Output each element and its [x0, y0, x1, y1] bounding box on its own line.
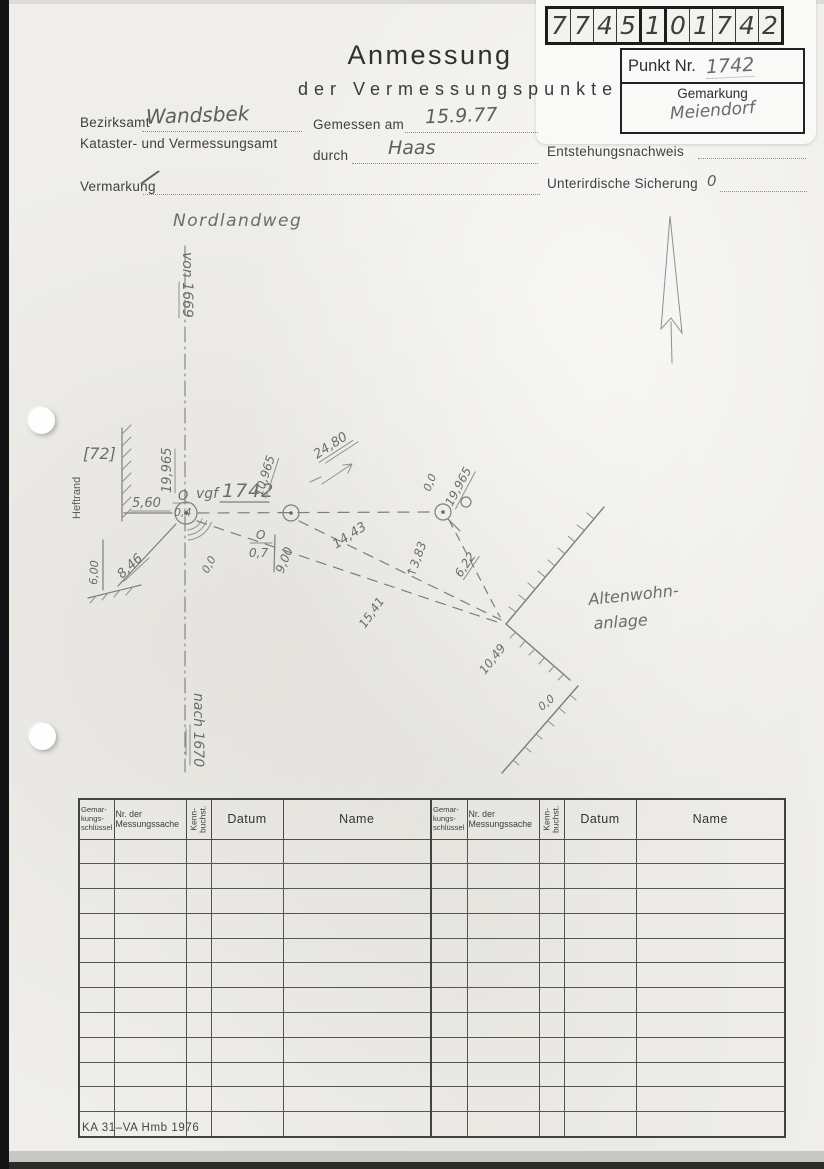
table-cell	[636, 913, 785, 938]
measure-900: 9,00	[273, 545, 296, 575]
table-cell	[283, 963, 431, 988]
table-row	[431, 913, 785, 938]
table-cell	[539, 1087, 564, 1112]
table-cell	[636, 1087, 785, 1112]
measure-19965-left: 19,965	[160, 448, 175, 494]
table-cell	[211, 963, 283, 988]
col-gemarkungsschluessel: Gemar- kungs- schlüssel	[431, 799, 467, 839]
table-cell	[431, 963, 467, 988]
table-cell	[211, 913, 283, 938]
table-cell	[211, 839, 283, 864]
table-cell	[564, 963, 636, 988]
table-cell	[186, 1013, 211, 1038]
table-cell	[431, 889, 467, 914]
col-gemarkungsschluessel: Gemar- kungs- schlüssel	[79, 799, 114, 839]
point2-symbol: O	[256, 528, 265, 542]
north-arrow-icon	[661, 216, 682, 363]
measure-text: 19,965	[442, 465, 474, 509]
measure-00-p3: 0,0	[421, 472, 440, 493]
table-row	[79, 1062, 431, 1087]
measure-1443: 14,43	[330, 520, 369, 553]
table-cell	[467, 963, 539, 988]
table-cell	[431, 1087, 467, 1112]
table-row	[431, 1037, 785, 1062]
table-cell	[283, 988, 431, 1013]
table-cell	[283, 889, 431, 914]
table-cell	[79, 1013, 114, 1038]
table-cell	[431, 864, 467, 889]
ray-1443	[299, 521, 501, 620]
table-row	[79, 889, 431, 914]
table-cell	[114, 1062, 186, 1087]
measure-622: 6,22	[452, 549, 479, 580]
table-row	[431, 1062, 785, 1087]
table-cell	[211, 889, 283, 914]
table-cell	[186, 889, 211, 914]
table-cell	[467, 913, 539, 938]
table-cell	[431, 1013, 467, 1038]
area-label-line2: anlage	[593, 610, 649, 633]
table-cell	[114, 864, 186, 889]
table-cell	[79, 1037, 114, 1062]
measure-1049: 10,49	[476, 641, 508, 677]
table-cell	[283, 913, 431, 938]
table-cell	[636, 1037, 785, 1062]
measure-text: 0,0	[421, 472, 440, 493]
table-cell	[564, 1037, 636, 1062]
wall-hatch	[122, 425, 131, 518]
table-header-row: Gemar- kungs- schlüssel Nr. der Messungs…	[431, 799, 785, 839]
table-cell	[79, 839, 114, 864]
table-cell	[636, 1062, 785, 1087]
table-cell	[79, 988, 114, 1013]
measure-text: 10,49	[476, 641, 508, 677]
col-datum: Datum	[564, 799, 636, 839]
table-cell	[186, 938, 211, 963]
table-cell	[467, 1037, 539, 1062]
table-cell	[539, 889, 564, 914]
table-cell	[186, 1087, 211, 1112]
table-cell	[186, 1062, 211, 1087]
table-cell	[539, 1062, 564, 1087]
heftrand-text: Heftrand	[71, 477, 83, 519]
table-cell	[114, 839, 186, 864]
table-cell	[211, 1112, 283, 1137]
table-cell	[636, 889, 785, 914]
table-cell	[564, 1062, 636, 1087]
baseline-dashed	[198, 512, 433, 513]
table-row	[79, 913, 431, 938]
table-cell	[283, 1013, 431, 1038]
table-row	[431, 938, 785, 963]
table-cell	[539, 1013, 564, 1038]
heftrand-label: Heftrand	[71, 477, 83, 519]
measure-10965: 10,965	[252, 454, 279, 499]
table-row	[79, 1087, 431, 1112]
table-cell	[283, 1062, 431, 1087]
table-cell	[564, 1013, 636, 1038]
measure-text: 0,0	[536, 692, 558, 713]
col-datum: Datum	[211, 799, 283, 839]
table-cell	[467, 1087, 539, 1112]
table-cell	[467, 839, 539, 864]
table-cell	[431, 938, 467, 963]
table-cell	[431, 913, 467, 938]
table-cell	[636, 938, 785, 963]
table-cell	[431, 1062, 467, 1087]
col-kennbuchstabe-text: Kenn- buchst.	[542, 801, 561, 837]
table-cell	[636, 1112, 785, 1137]
table-cell	[467, 988, 539, 1013]
measure-text: ↑3,83	[404, 540, 430, 579]
table-cell	[431, 1037, 467, 1062]
lower-wall-group: 6,00 8,46	[87, 524, 176, 603]
table-cell	[539, 1112, 564, 1137]
table-cell	[467, 1062, 539, 1087]
table-cell	[636, 839, 785, 864]
table-row	[79, 938, 431, 963]
col-name: Name	[283, 799, 431, 839]
col-messungssache: Nr. der Messungssache	[114, 799, 186, 839]
table-cell	[114, 938, 186, 963]
table-cell	[539, 963, 564, 988]
table-body	[79, 839, 431, 1137]
form-code: KA 31–VA Hmb 1976	[82, 1122, 199, 1134]
table-cell	[431, 1112, 467, 1137]
table-row	[79, 839, 431, 864]
table-cell	[211, 1013, 283, 1038]
measure-04: 0,4	[174, 506, 192, 519]
axis-from-text: von 1669	[179, 252, 195, 318]
col-kennbuchstabe: Kenn- buchst.	[186, 799, 211, 839]
col-kennbuchstabe-text: Kenn- buchst.	[189, 801, 208, 837]
table-cell	[211, 1087, 283, 1112]
small-circle-mark	[461, 497, 471, 507]
measure-383: ↑3,83	[404, 540, 430, 579]
measurement-log-table-right: Gemar- kungs- schlüssel Nr. der Messungs…	[430, 798, 786, 1138]
table-cell	[283, 1087, 431, 1112]
table-cell	[283, 1037, 431, 1062]
table-body	[431, 839, 785, 1137]
table-cell	[539, 864, 564, 889]
area-text: Altenwohn-	[586, 581, 679, 609]
point1-symbol: O	[178, 489, 188, 504]
table-cell	[467, 889, 539, 914]
table-cell	[211, 1037, 283, 1062]
table-row	[79, 864, 431, 889]
table-row	[79, 1013, 431, 1038]
measure-2480: 24,80	[311, 426, 358, 466]
table-cell	[539, 839, 564, 864]
table-cell	[79, 1062, 114, 1087]
axis-to-label: nach 1670	[186, 693, 206, 767]
table-row	[79, 988, 431, 1013]
table-cell	[114, 913, 186, 938]
measurement-log-table-left: Gemar- kungs- schlüssel Nr. der Messungs…	[78, 798, 432, 1138]
table-cell	[211, 1062, 283, 1087]
table-cell	[283, 864, 431, 889]
table-cell	[211, 988, 283, 1013]
table-cell	[186, 988, 211, 1013]
measure-text: 19,965	[160, 448, 175, 494]
table-cell	[564, 938, 636, 963]
measure-text: 14,43	[330, 520, 369, 553]
table-header-row: Gemar- kungs- schlüssel Nr. der Messungs…	[79, 799, 431, 839]
table-row	[79, 963, 431, 988]
table-row	[431, 889, 785, 914]
table-cell	[79, 963, 114, 988]
table-cell	[186, 963, 211, 988]
table-cell	[539, 988, 564, 1013]
table-cell	[431, 988, 467, 1013]
table-cell	[79, 938, 114, 963]
table-cell	[114, 1037, 186, 1062]
table-cell	[114, 1013, 186, 1038]
col-messungssache: Nr. der Messungssache	[467, 799, 539, 839]
parcel-number-label: [72]	[83, 444, 116, 463]
table-cell	[283, 839, 431, 864]
table-cell	[79, 889, 114, 914]
table-cell	[564, 1087, 636, 1112]
table-cell	[636, 963, 785, 988]
measure-07: 0,7	[249, 546, 268, 560]
axis-to-text: nach 1670	[190, 693, 206, 767]
table-cell	[186, 839, 211, 864]
table-cell	[283, 1112, 431, 1137]
table-cell	[636, 988, 785, 1013]
table-cell	[467, 1112, 539, 1137]
table-row	[431, 1087, 785, 1112]
table-cell	[114, 1087, 186, 1112]
table-cell	[467, 1013, 539, 1038]
table-row	[79, 1037, 431, 1062]
measure-text: 0,0	[199, 554, 219, 576]
point1-note: vgf	[196, 486, 220, 502]
measure-text: 6,22	[452, 550, 479, 580]
table-cell	[79, 864, 114, 889]
table-cell	[79, 1087, 114, 1112]
measure-600: 6,00	[87, 560, 101, 585]
table-cell	[564, 1112, 636, 1137]
street-name-label: Nordlandweg	[173, 211, 302, 231]
table-cell	[564, 988, 636, 1013]
col-kennbuchstabe: Kenn- buchst.	[539, 799, 564, 839]
table-row	[431, 963, 785, 988]
measure-560: 5,60	[132, 496, 161, 511]
table-cell	[564, 839, 636, 864]
table-row	[431, 839, 785, 864]
table-cell	[79, 913, 114, 938]
measure-00-p1: 0,0	[199, 554, 219, 576]
col-name: Name	[636, 799, 785, 839]
table-cell	[211, 864, 283, 889]
table-row	[431, 1112, 785, 1137]
measure-19965-right: 19,965	[442, 465, 475, 509]
table-cell	[186, 1037, 211, 1062]
table-cell	[467, 938, 539, 963]
direction-arrow	[310, 464, 352, 484]
table-cell	[539, 938, 564, 963]
area-text: anlage	[593, 610, 649, 633]
table-cell	[636, 1013, 785, 1038]
table-row	[431, 988, 785, 1013]
table-cell	[186, 913, 211, 938]
scanned-survey-form: 7 7 4 5 1 0 1 7 4 2 Punkt Nr. 1742 Gemar…	[0, 0, 824, 1169]
table-cell	[211, 938, 283, 963]
axis-from-label: von 1669	[179, 252, 195, 318]
table-cell	[186, 864, 211, 889]
table-row	[431, 864, 785, 889]
table-cell	[539, 913, 564, 938]
building-outline	[502, 507, 604, 773]
measure-846: 8,46	[114, 551, 145, 582]
table-cell	[564, 864, 636, 889]
measure-text: 15,41	[356, 595, 387, 631]
table-cell	[467, 864, 539, 889]
measure-00-building: 0,0	[536, 692, 558, 713]
table-cell	[431, 839, 467, 864]
table-cell	[114, 963, 186, 988]
table-cell	[564, 913, 636, 938]
table-cell	[283, 938, 431, 963]
measure-1541: 15,41	[356, 595, 387, 631]
area-label-line1: Altenwohn-	[586, 581, 679, 609]
table-cell	[114, 988, 186, 1013]
table-cell	[114, 889, 186, 914]
table-cell	[636, 864, 785, 889]
table-cell	[539, 1037, 564, 1062]
table-cell	[564, 889, 636, 914]
table-row	[431, 1013, 785, 1038]
